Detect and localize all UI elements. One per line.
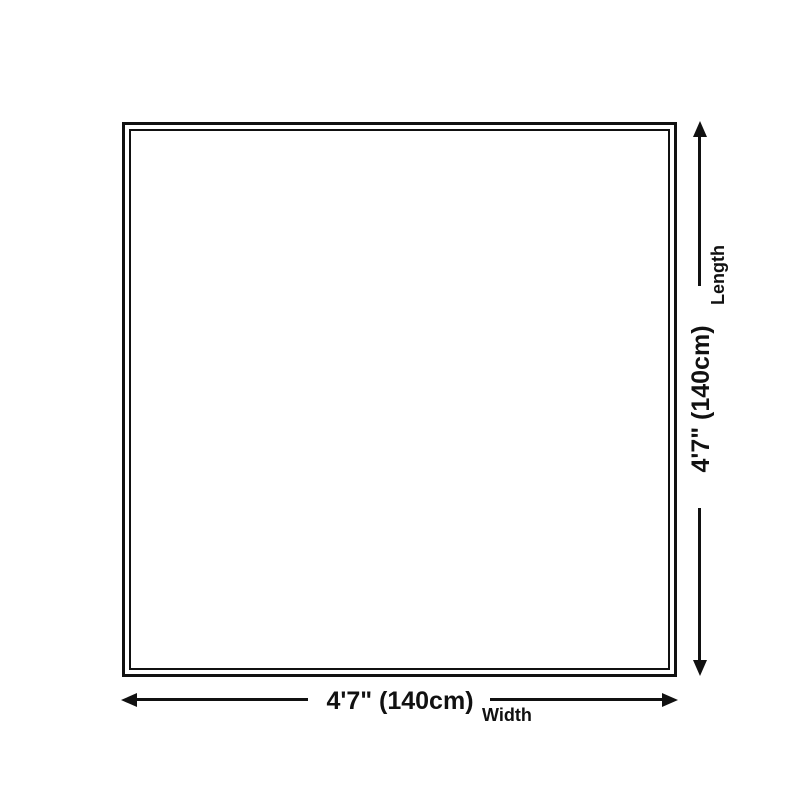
size-diagram: Length 4'7" (140cm) 4'7" (140cm) Width	[0, 0, 800, 800]
width-caption: Width	[482, 704, 532, 726]
length-value-label: 4'7" (140cm)	[686, 289, 716, 509]
arrow-right-icon	[662, 693, 678, 707]
product-outline-outer	[122, 122, 677, 677]
arrow-left-icon	[121, 693, 137, 707]
length-line-bottom	[698, 508, 701, 662]
product-outline-inner	[129, 129, 670, 670]
width-line-left	[136, 698, 308, 701]
width-value-label: 4'7" (140cm)	[300, 686, 500, 716]
length-line-top	[698, 135, 701, 286]
arrow-down-icon	[693, 660, 707, 676]
width-line-right	[490, 698, 664, 701]
